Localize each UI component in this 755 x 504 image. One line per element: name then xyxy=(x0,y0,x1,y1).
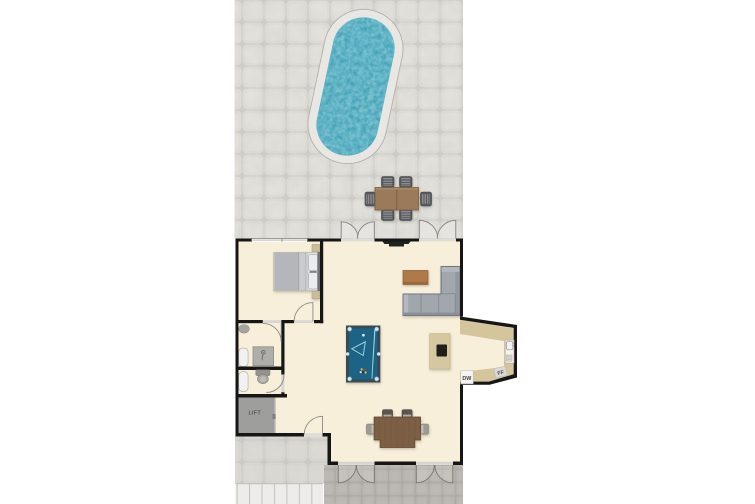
svg-text:LIFT: LIFT xyxy=(248,411,261,417)
svg-text:DW: DW xyxy=(462,376,472,382)
